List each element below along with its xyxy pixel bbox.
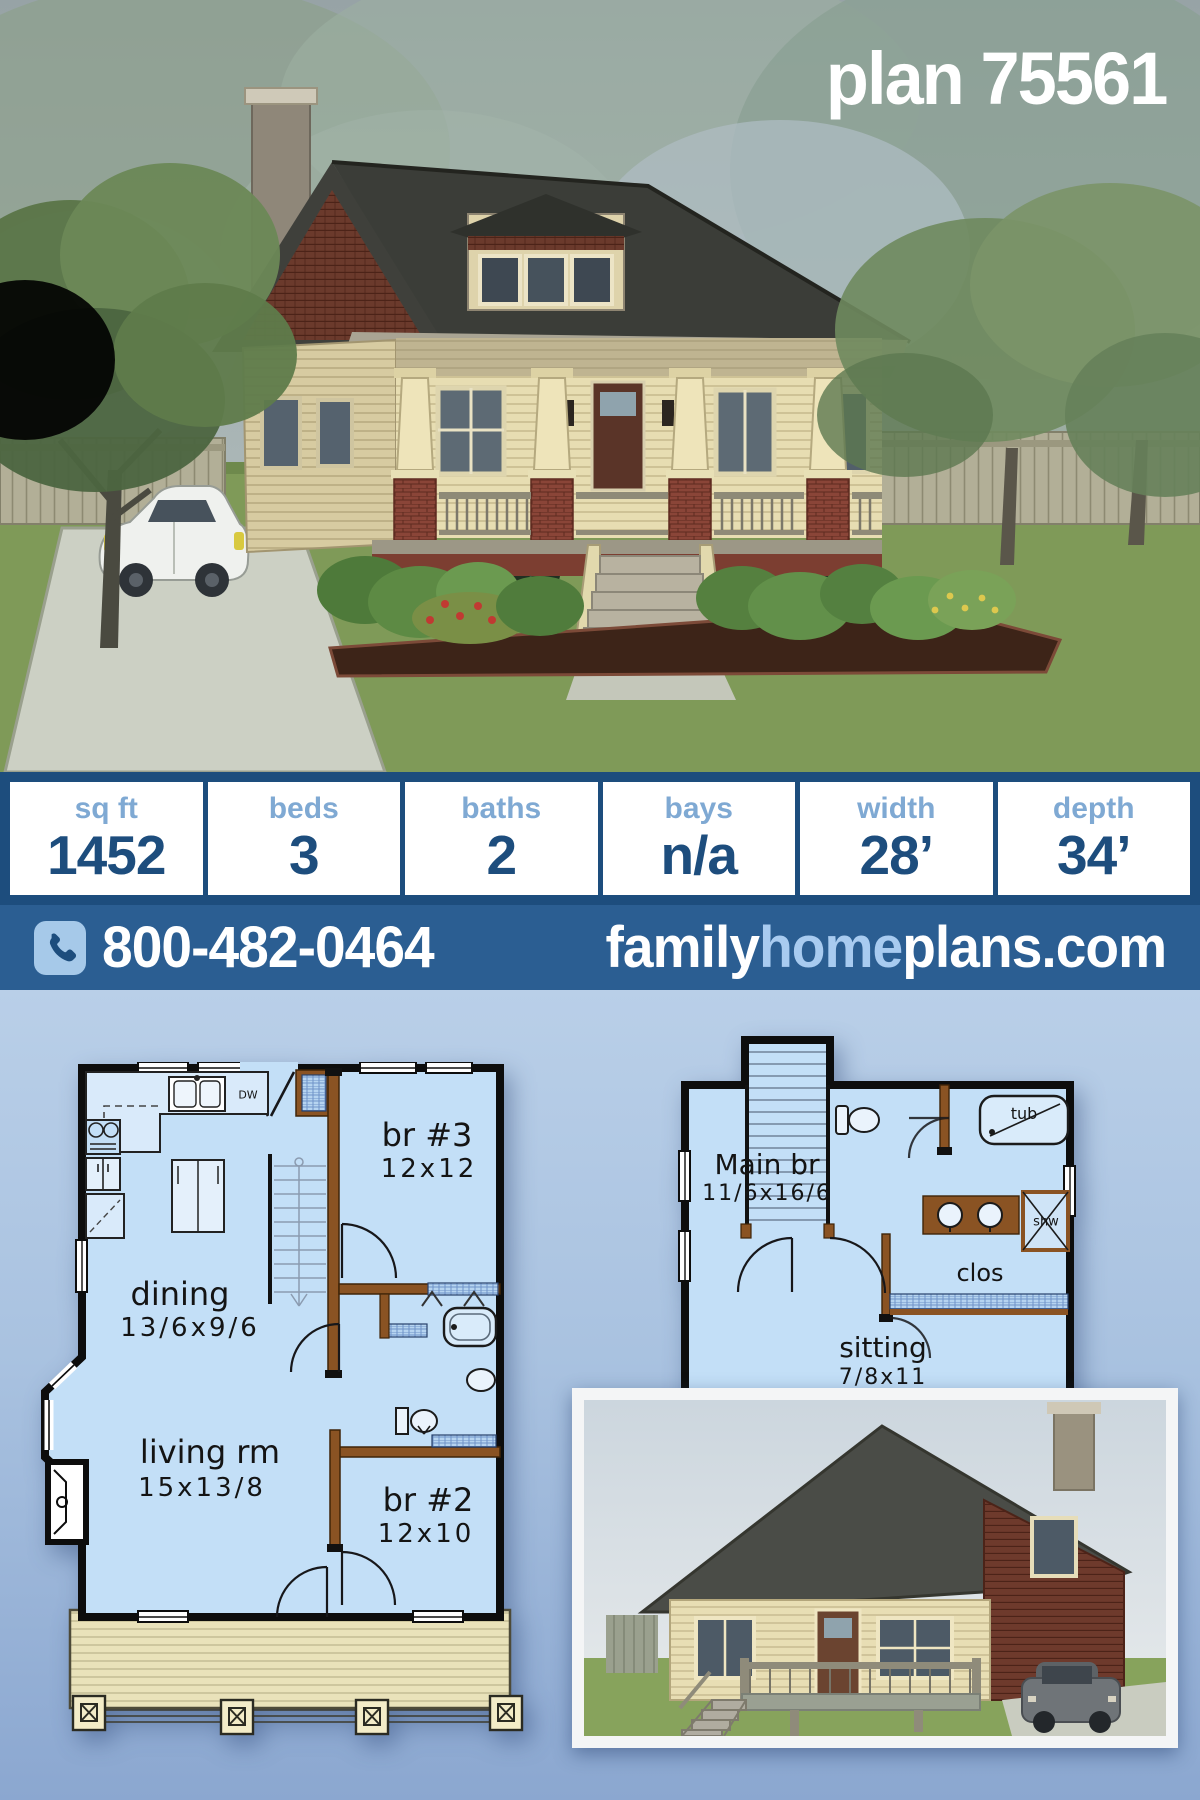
stat-bays: bays n/a [603,782,796,895]
plans-section: br #3 12x12 dining 13/6x9/6 living rm 15… [0,990,1200,1800]
front-exterior-render: plan 75561 [0,0,1200,772]
website: familyhomeplans.com [605,914,1166,981]
shower-label: shw [1033,1216,1059,1229]
stat-label: sq ft [75,792,138,827]
fireplace [48,1462,86,1542]
stat-depth: depth 34’ [998,782,1191,895]
stat-width: width 28’ [800,782,993,895]
room-dims-br2: 12x10 [378,1521,475,1547]
toilet [836,1106,879,1134]
room-dims-br3: 12x12 [381,1156,478,1182]
stats-bar: sq ft 1452 beds 3 baths 2 bays n/a width… [0,772,1200,905]
room-dims-sitting: 7/8x11 [839,1367,927,1389]
room-label-living-rm: living rm [140,1436,280,1468]
porch-floor-edge [372,540,882,554]
tub-label: tub [1011,1106,1038,1122]
site-home: home [759,915,902,980]
room-label-br2: br #2 [383,1484,474,1516]
room-label-br3: br #3 [382,1119,473,1151]
stat-value: 28’ [860,827,933,885]
stat-beds: beds 3 [208,782,401,895]
stat-baths: baths 2 [405,782,598,895]
contact-bar: 800-482-0464 familyhomeplans.com [0,905,1200,990]
chimney [1054,1410,1094,1490]
plan-title: plan 75561 [825,42,1166,116]
dishwasher-label: DW [238,1090,257,1101]
rear-exterior-render [572,1388,1178,1748]
stat-sqft: sq ft 1452 [10,782,203,895]
stat-label: depth [1053,792,1135,827]
house-plan-flyer: plan 75561 sq ft 1452 beds 3 baths 2 bay… [0,0,1200,1800]
stat-value: 3 [289,827,319,885]
room-dims-dining: 13/6x9/6 [120,1315,260,1341]
room-label-dining: dining [131,1278,230,1310]
room-dims-living-rm: 15x13/8 [138,1475,266,1501]
phone-number: 800-482-0464 [102,914,434,981]
entry-sidelight [296,1070,332,1116]
phone-icon [34,921,86,975]
first-floor-plan: br #3 12x12 dining 13/6x9/6 living rm 15… [40,1062,525,1757]
room-dims-main-br: 11/6x16/6 [702,1183,832,1205]
site-plans: plans.com [902,915,1166,980]
porch-lantern [662,400,674,426]
room-label-main-br: Main br [714,1151,819,1179]
stat-value: 2 [486,827,516,885]
stat-label: beds [269,792,339,827]
stat-value: n/a [661,827,737,885]
site-family: family [605,915,759,980]
stat-label: baths [461,792,541,827]
stat-label: bays [665,792,733,827]
room-label-sitting: sitting [839,1334,927,1362]
porch-deck [70,1610,510,1708]
stat-value: 34’ [1057,827,1130,885]
stat-label: width [857,792,935,827]
porch-rail-lines [76,1710,504,1722]
closet-label: clos [956,1261,1003,1285]
stat-value: 1452 [47,827,165,885]
rear-render-art [584,1400,1166,1736]
gable-window [1032,1518,1076,1576]
phone-group: 800-482-0464 [34,914,451,981]
